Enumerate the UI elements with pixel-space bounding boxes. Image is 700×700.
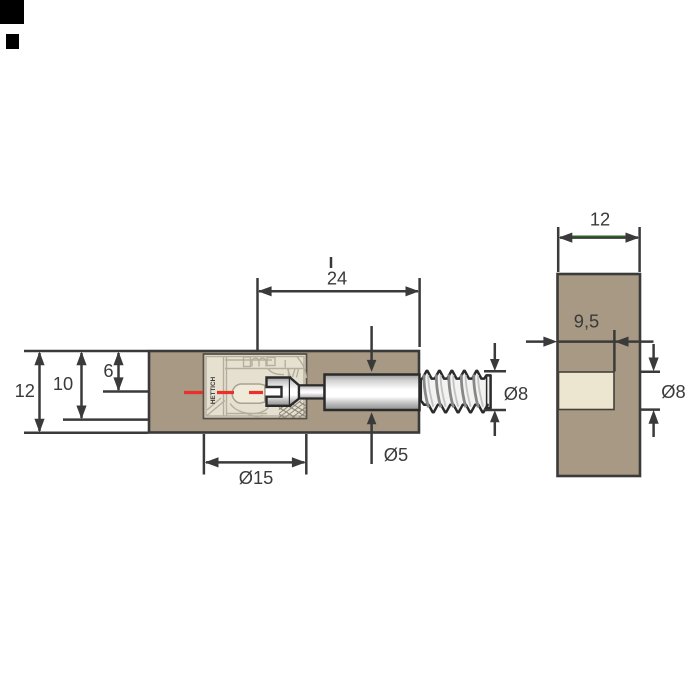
svg-text:Ø5: Ø5 xyxy=(384,444,408,465)
svg-text:12: 12 xyxy=(590,209,610,230)
svg-text:9,5: 9,5 xyxy=(574,311,599,332)
svg-text:12: 12 xyxy=(15,380,35,401)
svg-text:Ø8: Ø8 xyxy=(661,381,685,402)
svg-text:Ø15: Ø15 xyxy=(239,467,274,488)
svg-text:6: 6 xyxy=(103,360,113,381)
svg-text:HETTICH: HETTICH xyxy=(210,376,217,404)
svg-text:10: 10 xyxy=(53,373,73,394)
svg-text:Ø8: Ø8 xyxy=(504,383,528,404)
svg-text:24: 24 xyxy=(327,268,347,289)
